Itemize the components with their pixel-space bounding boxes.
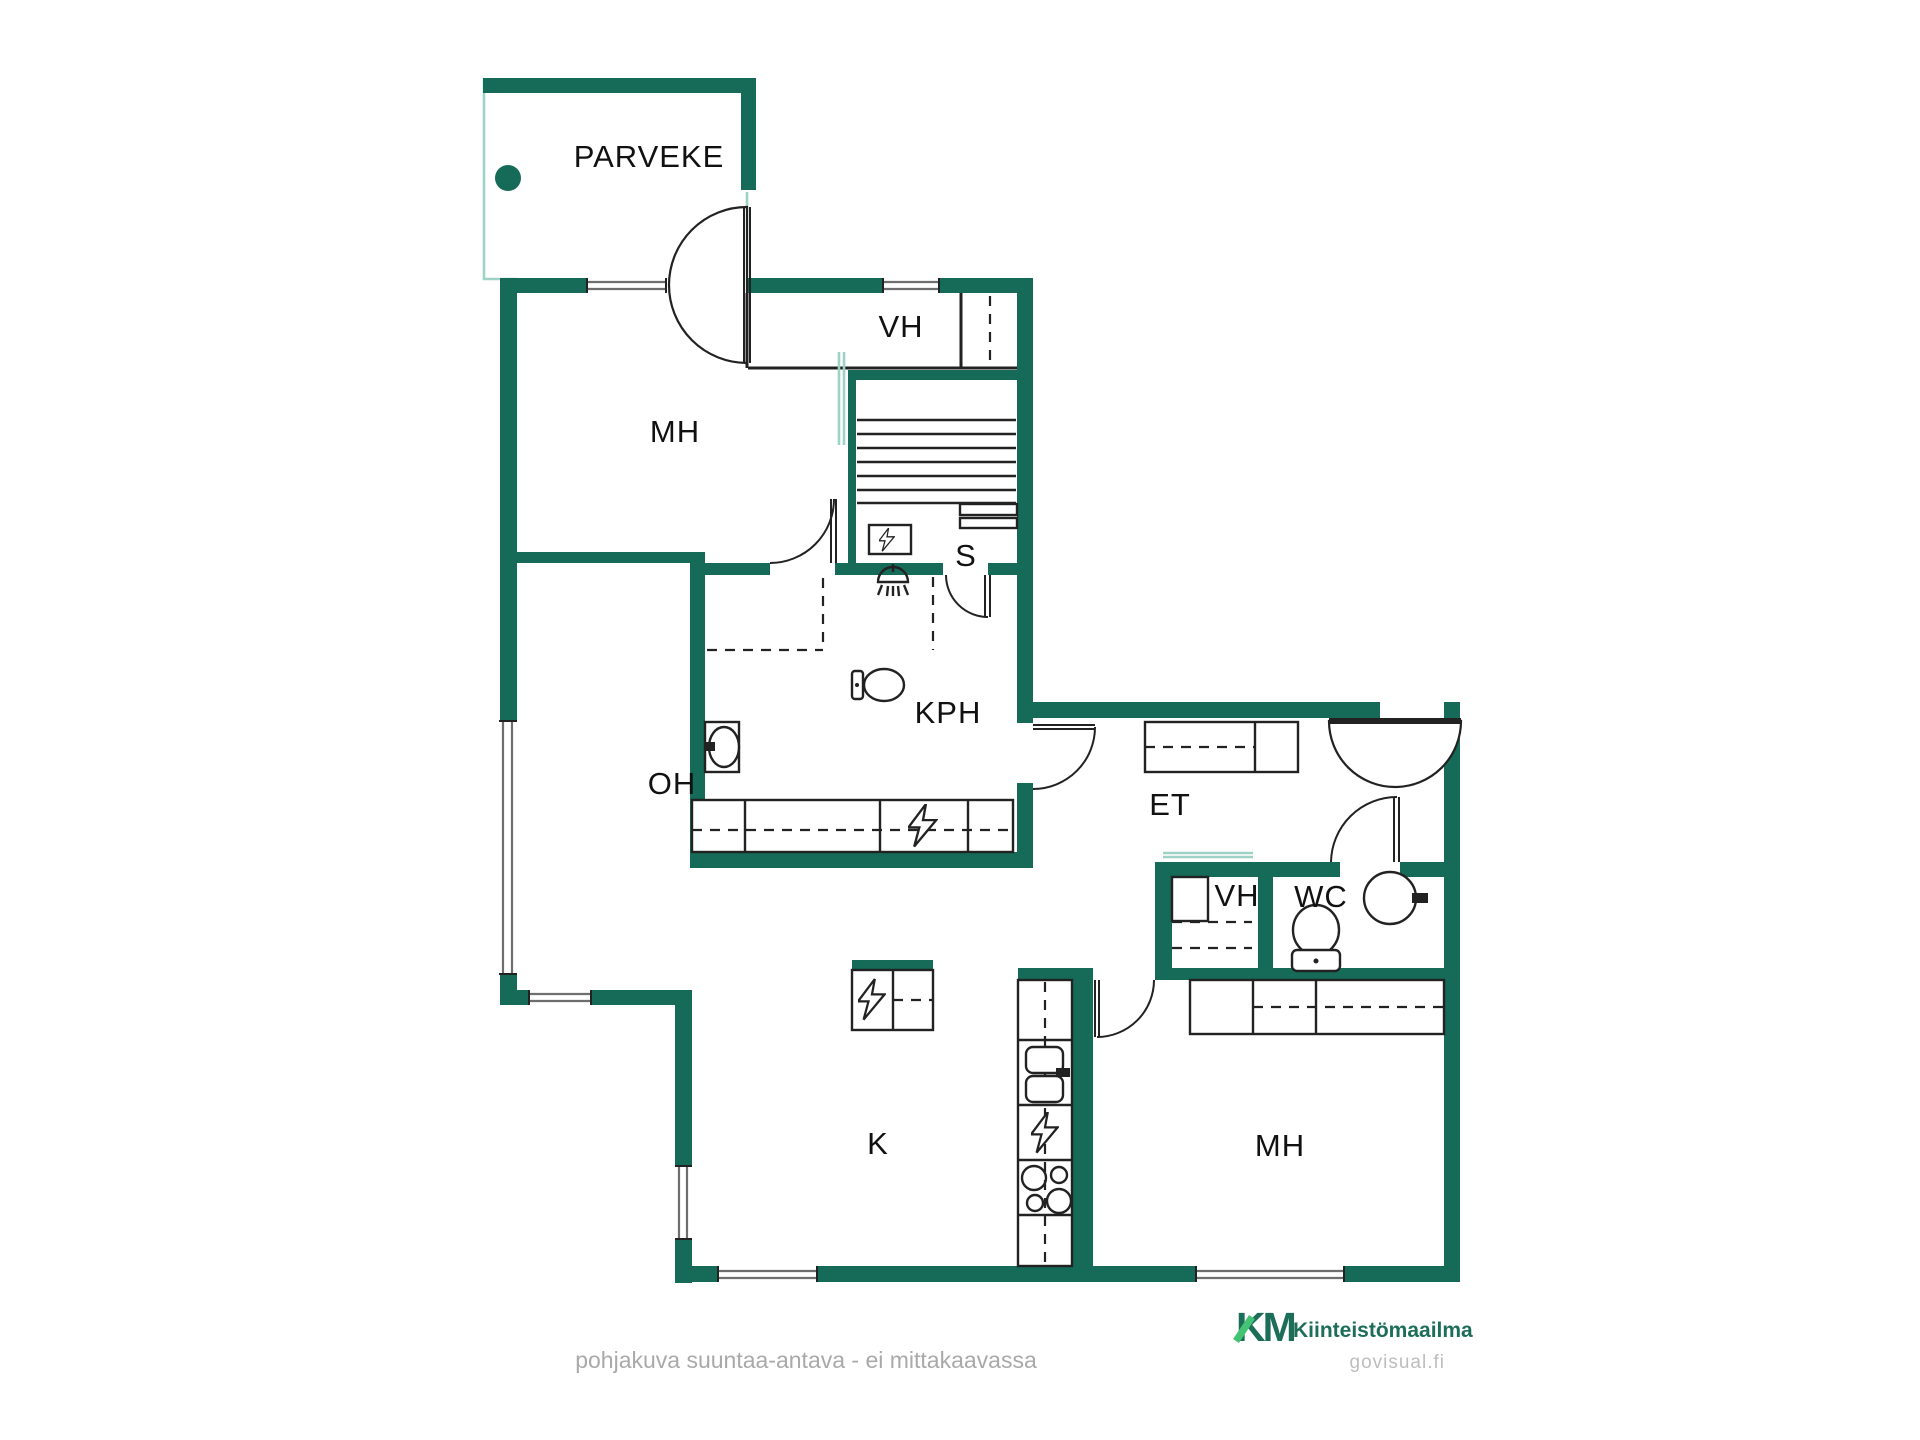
window-kitchen-bottom xyxy=(717,1265,818,1283)
room-label-sauna: S xyxy=(955,538,977,573)
room-label-entry-hall: ET xyxy=(1149,787,1191,822)
wall-segment xyxy=(1018,968,1093,980)
toilet-icon xyxy=(852,669,904,701)
wc-door xyxy=(1331,797,1399,862)
balcony-drain-dot xyxy=(495,165,521,191)
room-label-wc: WC xyxy=(1294,879,1348,914)
window-bedroom-bottom xyxy=(1195,1265,1345,1283)
wall-segment xyxy=(690,563,770,575)
sauna-stove-icon xyxy=(869,525,911,554)
window-bedroom-top xyxy=(586,277,667,294)
window-living-room-jog xyxy=(528,989,592,1006)
kitchen-interior xyxy=(852,970,1072,1266)
wall-segment xyxy=(852,960,933,970)
room-label-living-room: OH xyxy=(648,766,697,801)
room-label-bathroom: KPH xyxy=(915,695,982,730)
sauna-step xyxy=(960,504,1017,515)
wall-segment xyxy=(500,278,517,720)
sauna-door xyxy=(946,575,990,617)
sauna-glass-wall xyxy=(839,352,844,445)
balcony-right-wall xyxy=(741,78,756,190)
kitchen-counter xyxy=(1018,980,1072,1266)
floor-plan-page: PARVEKE xyxy=(0,0,1920,1440)
bedroom-wardrobe xyxy=(1190,980,1444,1034)
wall-segment xyxy=(818,1266,1195,1282)
laundry-counter xyxy=(692,800,1013,852)
wall-segment xyxy=(848,370,856,563)
balcony-door xyxy=(669,207,750,363)
fridge-icon xyxy=(852,970,933,1030)
footer: pohjakuva suuntaa-antava - ei mittakaava… xyxy=(575,1304,1473,1373)
floor-plan-canvas: PARVEKE xyxy=(0,0,1920,1440)
km-logo-name: Kiinteistömaailma xyxy=(1293,1319,1473,1342)
room-label-kitchen: K xyxy=(867,1126,889,1161)
closet-shelf-box xyxy=(1172,877,1208,921)
bedroom-bottom-interior xyxy=(1190,980,1444,1034)
wall-segment xyxy=(848,370,1033,380)
round-sink-icon xyxy=(1364,872,1428,924)
wall-segment xyxy=(1345,1266,1460,1282)
km-logo: KM Kiinteistömaailma xyxy=(1236,1304,1473,1350)
room-label-closet-hall: VH xyxy=(1214,878,1259,913)
hall-wardrobe xyxy=(1145,722,1298,772)
bathroom-hall-door xyxy=(1033,725,1095,789)
bedroom-bottom-door xyxy=(1095,980,1154,1037)
hall-rail-glass xyxy=(1163,853,1253,857)
walls xyxy=(500,278,1460,1283)
wall-segment xyxy=(1033,702,1380,718)
entrance-door xyxy=(1329,719,1461,787)
room-label-closet-top: VH xyxy=(878,309,923,344)
room-label-balcony: PARVEKE xyxy=(574,139,725,174)
watermark-text: govisual.fi xyxy=(1350,1352,1446,1373)
wall-segment xyxy=(1258,877,1273,980)
room-label-bedroom-top: MH xyxy=(650,414,700,449)
wall-segment xyxy=(1444,702,1460,1282)
wall-segment xyxy=(835,563,943,575)
wall-segment xyxy=(675,990,692,1165)
sink-icon xyxy=(705,722,739,772)
window-kitchen-side xyxy=(673,1165,694,1240)
wall-segment xyxy=(1155,862,1172,980)
wall-segment xyxy=(1017,278,1033,723)
balcony-top-wall xyxy=(483,78,756,93)
sauna-interior xyxy=(839,352,1017,554)
sauna-step xyxy=(960,518,1017,528)
disclaimer-text: pohjakuva suuntaa-antava - ei mittakaava… xyxy=(575,1347,1037,1373)
wall-segment xyxy=(745,278,882,293)
window-living-room xyxy=(497,720,519,975)
wall-segment xyxy=(675,1266,717,1282)
wall-segment xyxy=(517,552,705,563)
wall-segment xyxy=(500,990,528,1005)
windows xyxy=(497,277,1345,1283)
wall-segment xyxy=(988,563,1017,575)
window-closet-top xyxy=(882,277,940,294)
wall-segment xyxy=(1072,980,1093,1266)
bedroom-bathroom-door xyxy=(770,499,836,563)
room-label-bedroom-bottom: MH xyxy=(1255,1128,1305,1163)
toilet-icon xyxy=(1292,905,1340,971)
wall-segment xyxy=(1400,862,1444,877)
wall-segment xyxy=(1155,862,1340,877)
sauna-benches xyxy=(857,420,1016,503)
wall-segment xyxy=(690,852,1033,868)
